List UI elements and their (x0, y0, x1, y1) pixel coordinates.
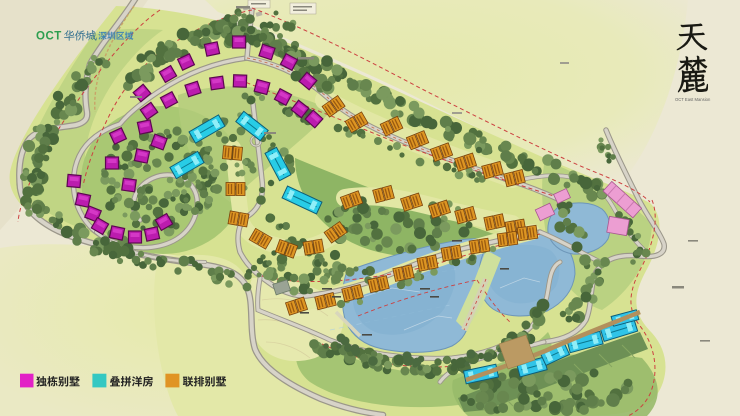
svg-text:OCT: OCT (36, 31, 62, 43)
svg-text:OCT East Mansion: OCT East Mansion (675, 97, 711, 102)
